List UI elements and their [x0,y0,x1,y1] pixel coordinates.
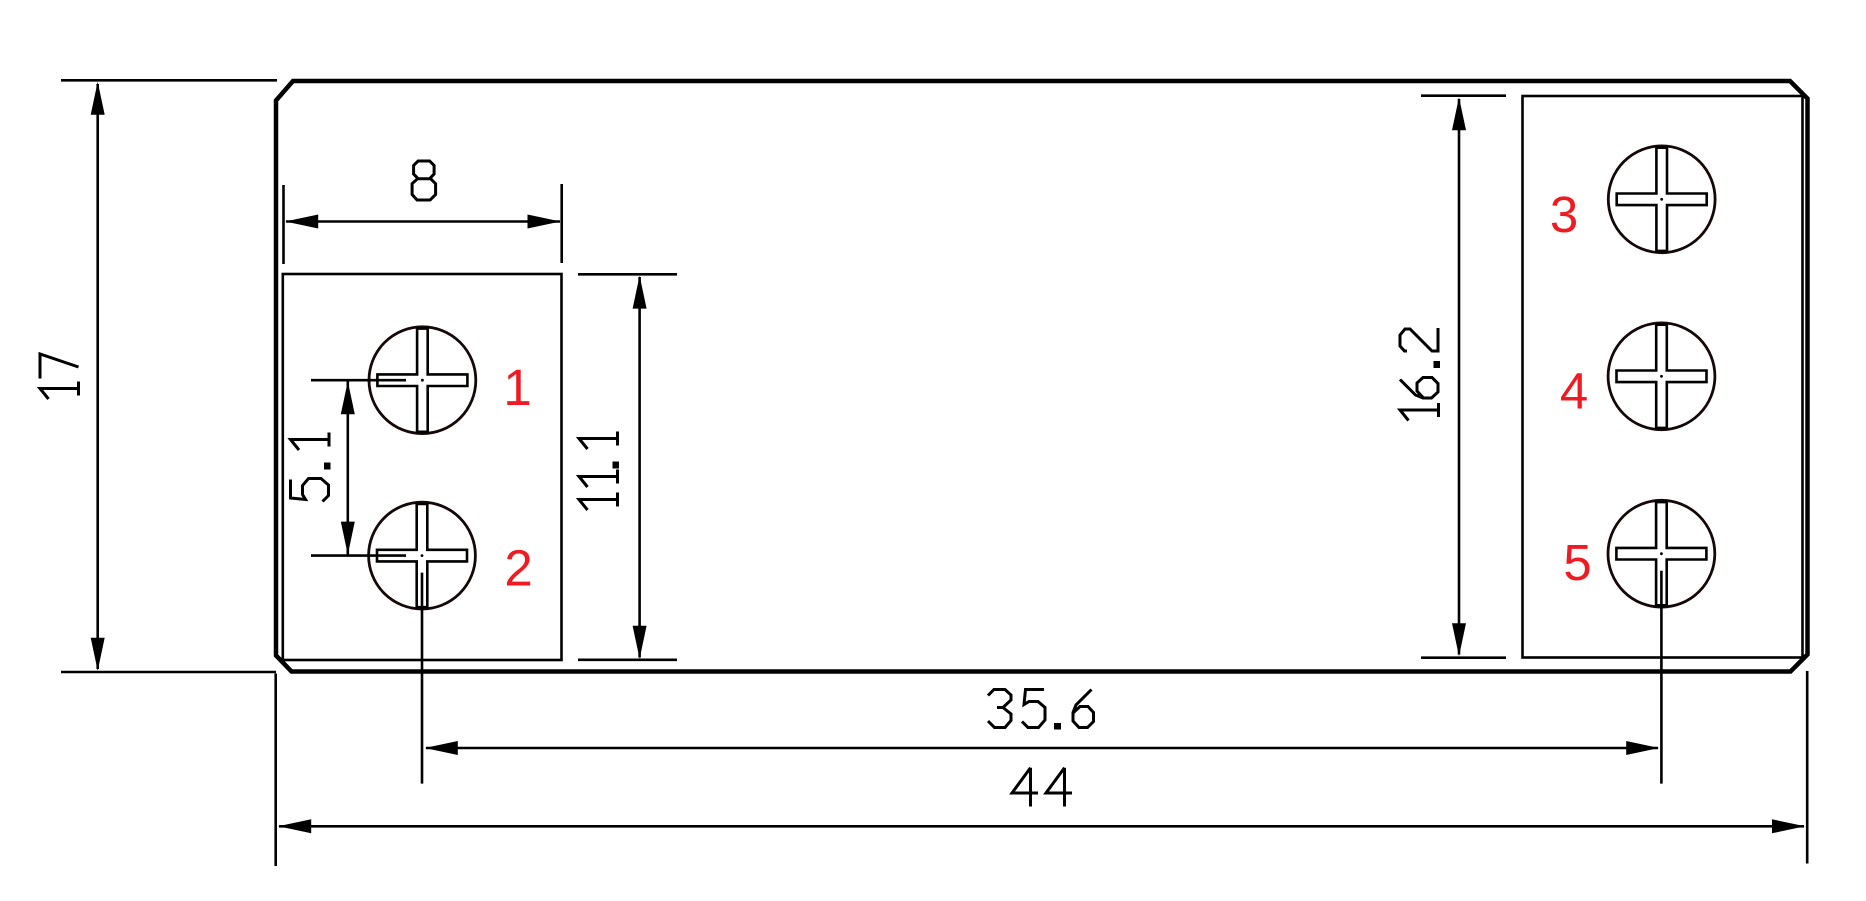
svg-text:4: 4 [1560,363,1588,420]
svg-text:1: 1 [503,359,531,416]
svg-text:2: 2 [504,540,532,597]
svg-text:5: 5 [1563,534,1591,591]
svg-text:3: 3 [1550,186,1578,243]
